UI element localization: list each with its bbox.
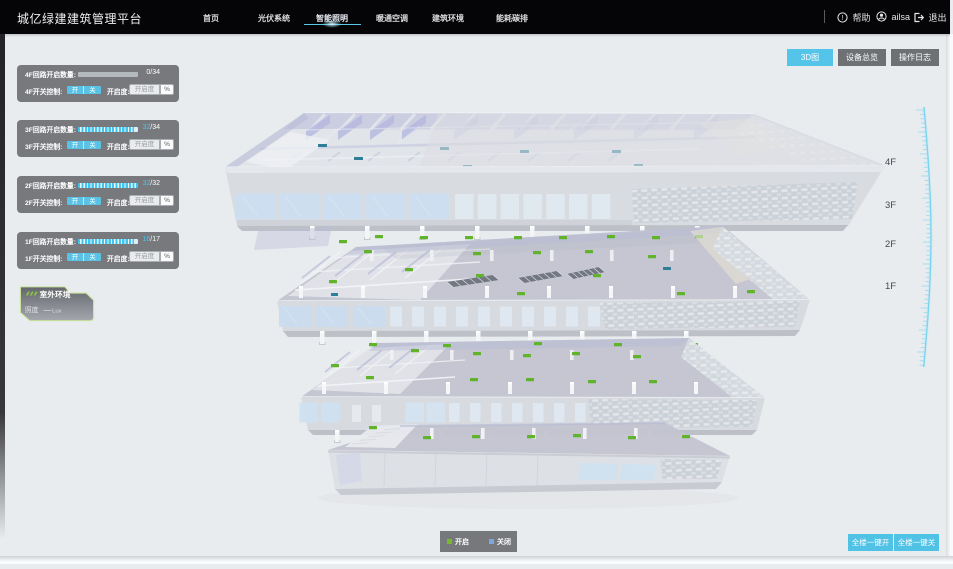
svg-text:室外环境: 室外环境 bbox=[39, 289, 70, 299]
svg-text:!: ! bbox=[842, 15, 844, 22]
svg-text:2F: 2F bbox=[885, 239, 896, 250]
svg-text:4F: 4F bbox=[885, 157, 896, 168]
svg-text:—: — bbox=[43, 305, 51, 314]
svg-text:Lux: Lux bbox=[52, 309, 62, 315]
svg-text:照度: 照度 bbox=[25, 305, 39, 314]
svg-text:1F: 1F bbox=[885, 281, 896, 292]
svg-text:3F: 3F bbox=[885, 200, 896, 211]
